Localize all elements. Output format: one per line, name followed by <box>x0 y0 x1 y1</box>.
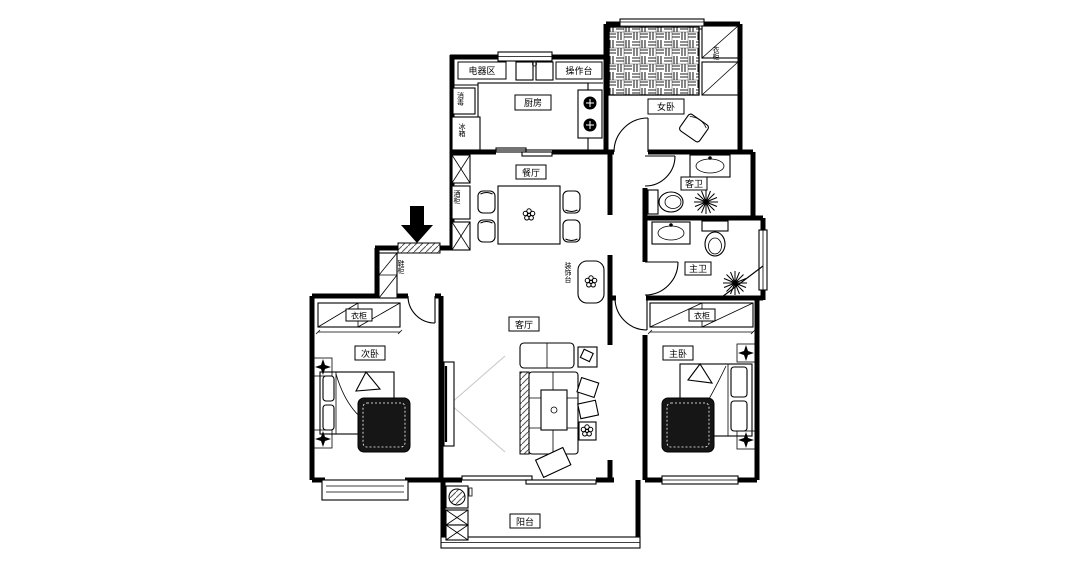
entry-threshold <box>398 243 440 253</box>
wardrobe-label-closet: 衣柜 <box>712 45 720 61</box>
kitchen-floor <box>478 83 588 150</box>
svg-text:消毒: 消毒 <box>457 91 465 107</box>
kitchen-window <box>498 52 552 61</box>
master-bath-label: 主卫 <box>685 262 711 275</box>
stove <box>578 90 602 138</box>
dining-room: 酒柜 餐厅 装饰台 <box>452 155 604 303</box>
kitchen-sliding-door <box>496 148 552 156</box>
svg-text:客厅: 客厅 <box>515 319 533 331</box>
dining-label: 餐厅 <box>516 165 546 179</box>
svg-text:厨房: 厨房 <box>524 97 542 109</box>
guest-bath-toilet <box>648 190 683 214</box>
small-bedroom-door <box>614 118 648 152</box>
balcony-window <box>441 537 640 548</box>
secondary-bedroom-door <box>408 296 435 323</box>
master-bedroom-window <box>662 476 738 484</box>
balcony-label: 阳台 <box>510 514 540 528</box>
counter-label: 操作台 <box>556 62 602 79</box>
entrance-arrow-icon <box>401 206 433 243</box>
shoe-cabinet-label: 鞋柜 <box>397 259 405 275</box>
kitchen-label: 厨房 <box>515 95 551 110</box>
kitchen: 电器区 操作台 消毒 冰箱 厨房 <box>452 62 603 150</box>
master-bath-toilet <box>702 221 728 256</box>
tv-unit <box>444 356 505 452</box>
wardrobe-label-master: 衣柜 <box>694 311 710 321</box>
kitchen-sink <box>516 62 553 80</box>
living-room: 客厅 <box>444 317 599 477</box>
floor-plan-drawing: 鞋柜 电器区 操作台 消毒 冰箱 <box>0 0 1074 576</box>
guest-bath: 客卫 <box>648 155 730 214</box>
balcony-cabinet <box>446 510 468 540</box>
shoe-cabinet: 鞋柜 <box>379 253 405 298</box>
entry-area: 鞋柜 <box>379 206 440 298</box>
secondary-wardrobe: 衣柜 <box>316 303 402 334</box>
svg-text:电器区: 电器区 <box>468 65 495 77</box>
disinfect-cabinet: 消毒 <box>453 88 475 114</box>
svg-text:次卧: 次卧 <box>361 348 379 360</box>
fridge: 冰箱 <box>452 117 480 150</box>
master-bath-door <box>645 262 678 295</box>
small-bedroom-wardrobe: 衣柜 <box>702 26 738 95</box>
master-bath: 主卫 <box>652 221 763 300</box>
sofa-set <box>520 343 599 477</box>
small-bedroom: 衣柜 女卧 <box>609 26 738 143</box>
svg-text:阳台: 阳台 <box>516 516 534 528</box>
guest-bath-door <box>645 156 675 186</box>
wine-cabinet: 酒柜 <box>452 155 470 250</box>
master-bath-basin <box>652 222 690 244</box>
deco-stand-label: 装饰台 <box>564 261 572 284</box>
svg-text:餐厅: 餐厅 <box>522 167 540 179</box>
guest-bath-label: 客卫 <box>681 177 707 190</box>
tatami-bed <box>609 27 699 95</box>
appliance-area-label: 电器区 <box>458 62 506 79</box>
small-bedroom-label: 女卧 <box>648 99 684 114</box>
master-bath-window <box>759 230 767 290</box>
svg-text:主卫: 主卫 <box>689 263 707 275</box>
nightstand-icon <box>738 345 754 361</box>
svg-text:主卧: 主卧 <box>669 348 687 360</box>
svg-text:客卫: 客卫 <box>685 178 703 190</box>
master-wardrobe: 衣柜 <box>648 303 755 334</box>
washing-machine <box>446 486 472 508</box>
svg-text:冰箱: 冰箱 <box>458 122 466 138</box>
floor-drain-icon <box>694 190 718 214</box>
desk-chair <box>678 113 709 143</box>
secondary-bedroom-bay-window <box>322 480 408 500</box>
floor-plan-canvas: 鞋柜 电器区 操作台 消毒 冰箱 <box>0 0 1074 576</box>
master-bedroom-label: 主卧 <box>663 346 693 360</box>
shower-drain-icon <box>723 271 747 295</box>
living-label: 客厅 <box>509 317 539 331</box>
wardrobe-label-secondary: 衣柜 <box>351 311 367 321</box>
secondary-rug <box>358 398 410 452</box>
balcony-sliding-door <box>462 476 596 484</box>
secondary-bedroom-label: 次卧 <box>355 346 385 360</box>
svg-text:女卧: 女卧 <box>657 101 675 113</box>
master-rug <box>662 398 714 452</box>
guest-bath-basin <box>690 155 730 177</box>
svg-text:操作台: 操作台 <box>565 65 592 77</box>
master-bedroom-door <box>615 298 647 330</box>
master-bedroom: 衣柜 主卧 <box>648 303 755 452</box>
dining-table <box>478 186 580 244</box>
wine-cabinet-label: 酒柜 <box>453 190 461 205</box>
secondary-bedroom: 衣柜 次卧 <box>314 303 410 452</box>
deco-stand: 装饰台 <box>564 261 604 303</box>
balcony: 阳台 <box>446 486 540 540</box>
